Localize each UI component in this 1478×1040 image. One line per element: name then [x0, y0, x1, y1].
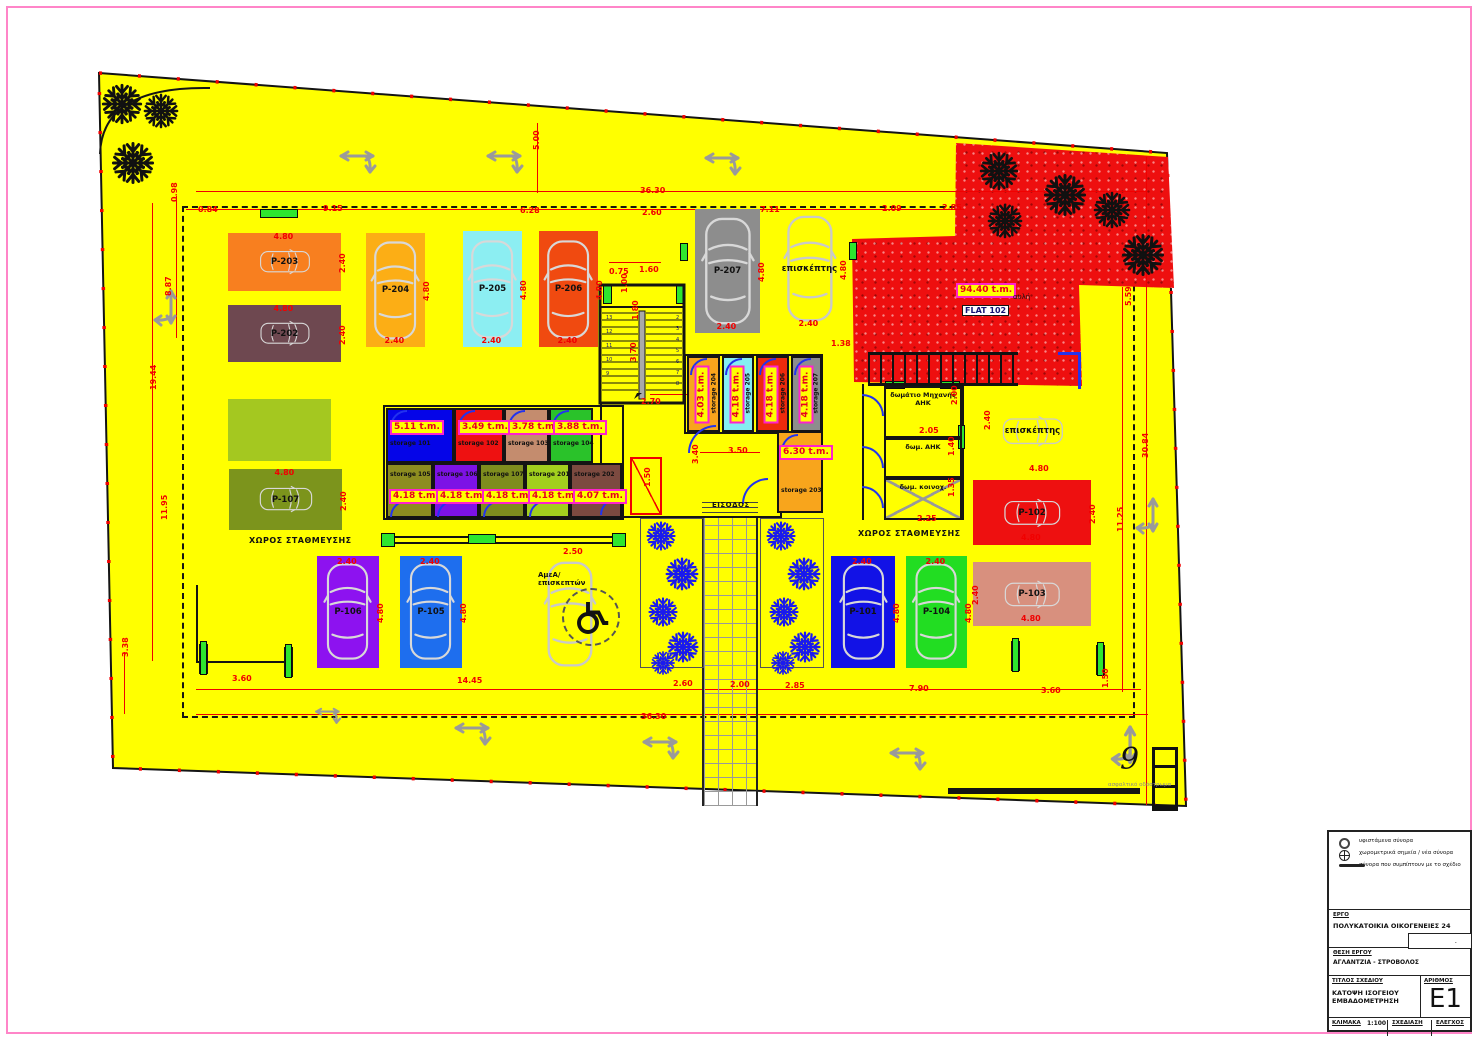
plant-icon: [645, 520, 677, 552]
dimension-label: 7.11: [760, 205, 780, 214]
wall-segment: [196, 585, 198, 663]
dimension-label: 14.45: [457, 676, 482, 685]
stall-label: P-106: [334, 607, 361, 617]
svg-text:9: 9: [606, 371, 609, 377]
survey-point-icon: [1339, 850, 1350, 861]
turn-arrow-icon: [450, 720, 494, 754]
stall-dim-main: 4.80: [892, 603, 901, 623]
shrub-icon: [645, 520, 677, 552]
dimension-label: 1.60: [639, 265, 659, 274]
parking-area-label-left: ΧΩΡΟΣ ΣΤΑΘΜΕΥΣΗΣ: [249, 536, 352, 545]
wall-accent: [468, 534, 496, 544]
dimension-label: 2.85: [785, 681, 805, 690]
dimension-label: 6.28: [520, 206, 540, 215]
plant-icon: [647, 596, 679, 628]
stall-dim-cross: 2.40: [717, 322, 737, 331]
dimension-label: 36.30: [641, 712, 666, 721]
storage-area-chip: 4.18 t.m.: [730, 366, 745, 424]
dimension-line: [196, 689, 1141, 690]
tree-icon: [100, 82, 144, 126]
dimension-label: 11.25: [1116, 507, 1125, 532]
shrub-icon: [768, 596, 800, 628]
wheelchair-circle: [562, 588, 620, 646]
storage-name-label: storage 103: [508, 440, 549, 447]
wall-accent: [285, 644, 292, 678]
turn-arrow: [312, 706, 343, 730]
stall-label: P-205: [479, 284, 506, 294]
plant-icon: [1120, 232, 1166, 278]
location-box: ΘΕΣΗ ΕΡΓΟΥ ΑΓΛΑΝΤΖΙΑ - ΣΤΡΟΒΟΛΟΣ: [1329, 948, 1470, 976]
scale-value: 1:100: [1367, 1020, 1386, 1027]
dimension-label: 8.87: [164, 276, 173, 296]
sheet-number: E1: [1424, 984, 1467, 1014]
dimension-label: 3.38: [121, 637, 130, 657]
plant-icon: [142, 92, 180, 130]
storage-area-chip: 4.18 t.m.: [764, 366, 779, 424]
dimension-label: 2.40: [983, 410, 992, 430]
dimension-label: 1.35: [947, 477, 956, 497]
dimension-label: 19.44: [149, 365, 158, 390]
svg-text:8: 8: [676, 381, 679, 387]
dimension-label: 2.70: [641, 397, 661, 406]
drawing-title-box: ΤΙΤΛΟΣ ΣΧΕΔΙΟΥ ΚΑΤΟΨΗ ΙΣΟΓΕΙΟΥ ΕΜΒΑΔΟΜΕΤ…: [1329, 976, 1470, 1018]
storage-name-label: storage 203: [781, 487, 822, 494]
svg-text:12: 12: [606, 329, 612, 335]
storage-area-chip: 4.03 t.m.: [695, 366, 710, 424]
dimension-label: 1.00: [620, 273, 629, 293]
dimension-label: 1.80: [631, 300, 640, 320]
stall-dim-main: 4.80: [757, 262, 766, 282]
turn-arrow: [482, 148, 526, 182]
dimension-label: 2.00: [950, 385, 959, 405]
dimension-line: [1122, 287, 1123, 692]
svg-text:10: 10: [606, 357, 612, 363]
drawn-label: ΣΧΕΔΙΑΣΗ: [1387, 1020, 1423, 1036]
parking-stall-p205: P-205: [463, 231, 522, 347]
scale-box: ΚΛΙΜΑΚΑ 1:100 ΣΧΕΔΙΑΣΗ ΕΛΕΓΧΟΣ: [1329, 1018, 1470, 1036]
red-zone-steps: [868, 352, 1018, 386]
turn-arrow: [885, 745, 929, 779]
storage-area-chip: 3.49 t.m.: [458, 420, 512, 435]
storage-name-label: storage 101: [390, 440, 431, 447]
dimension-label: 2.85: [942, 203, 962, 212]
stall-dim-cross: 2.40: [338, 325, 347, 345]
drawing-title-line1: ΚΑΤΟΨΗ ΙΣΟΓΕΙΟΥ: [1332, 989, 1417, 997]
legend-item: χωρομετρικά σημεία / νέα σύνορα: [1333, 850, 1466, 856]
stall-dim-main: 4.80: [274, 232, 294, 241]
stall-label: επισκέπτης: [1005, 426, 1060, 436]
stall-label: P-101: [849, 607, 876, 617]
drawing-sheet: 94.40 t.m. FLAT 102 αυλή ΧΩΡΟΣ ΣΤΑΘΜΕΥΣΗ…: [0, 0, 1478, 1040]
parking-stall-p101: P-101: [831, 556, 895, 668]
dimension-line: [152, 203, 153, 661]
dimension-label: 36.30: [640, 186, 665, 195]
shrub-icon: [647, 596, 679, 628]
stall-dim-cross: 2.40: [558, 336, 578, 345]
parking-stall-p202: P-202: [228, 305, 341, 362]
stall-dim-main: 4.80: [519, 280, 528, 300]
dimension-label: 2.05: [919, 426, 939, 435]
shrub-icon: [664, 556, 700, 592]
shrub-icon: [770, 650, 796, 676]
dimension-label: 3.60: [1041, 686, 1061, 695]
red-zone-court-label: αυλή: [1013, 293, 1030, 301]
svg-text:2: 2: [676, 315, 679, 321]
svg-text:3: 3: [676, 326, 679, 332]
stall-label: επισκέπτης: [782, 264, 837, 274]
shrub-icon: [786, 556, 822, 592]
stall-dim-main: 4.80: [1021, 614, 1041, 623]
tree-icon: [1042, 172, 1088, 218]
turn-arrow-icon: [700, 150, 744, 184]
plant-icon: [1092, 190, 1132, 230]
floor-plan: 94.40 t.m. FLAT 102 αυλή ΧΩΡΟΣ ΣΤΑΘΜΕΥΣΗ…: [0, 0, 1478, 1040]
turn-arrow: [700, 150, 744, 184]
boundary-point-icon: [1339, 838, 1350, 849]
tree-icon: [1120, 232, 1166, 278]
legend-box: υφιστάμενα σύνορα χωρομετρικά σημεία / ν…: [1329, 838, 1470, 910]
stall-dim-cross: 2.40: [1088, 504, 1097, 524]
room-label: δωμάτιο Μηχανής ΑΗΚ: [890, 391, 956, 407]
dimension-label: 1.38: [831, 339, 851, 348]
hall-wall: [600, 516, 782, 518]
staircase-drawing: 1312111092345678: [598, 283, 686, 405]
storage-name-label: storage 107: [483, 471, 524, 478]
road-structure: [1152, 747, 1178, 811]
project-box: ΕΡΓΟ ΠΟΛΥΚΑΤΟΙΚΙΑ ΟΙΚΟΓΕΝΕΙΕΣ 24 .: [1329, 910, 1470, 948]
stall-dim-main: 4.80: [459, 603, 468, 623]
scale-label: ΚΛΙΜΑΚΑ: [1332, 1020, 1361, 1026]
drawing-title-line2: ΕΜΒΑΔΟΜΕΤΡΗΣΗ: [1332, 997, 1417, 1005]
plant-icon: [770, 650, 796, 676]
dimension-label: 1.50: [1101, 668, 1110, 688]
parking-stall-p106: P-106: [317, 556, 379, 668]
plant-icon: [978, 150, 1020, 192]
stall-dim-cross: 2.40: [337, 557, 357, 566]
storage-name-label: storage 207: [813, 374, 820, 414]
storage-name-label: storage 102: [458, 440, 499, 447]
wall-segment: [962, 384, 964, 520]
wall-accent: [381, 533, 395, 547]
location-name: ΑΓΛΑΝΤΖΙΑ - ΣΤΡΟΒΟΛΟΣ: [1333, 959, 1466, 966]
plant-icon: [1042, 172, 1088, 218]
revision-box: .: [1408, 933, 1472, 949]
tree-icon: [110, 140, 156, 186]
dimension-label: 4.80: [1029, 464, 1049, 473]
wall-accent: [200, 641, 207, 675]
dimension-label: 1.40: [947, 436, 956, 456]
storage-name-label: storage 106: [437, 471, 478, 478]
turn-arrow-icon: [482, 148, 526, 182]
project-label: ΕΡΓΟ: [1333, 912, 1466, 918]
plant-icon: [786, 556, 822, 592]
staircase: 1312111092345678: [598, 283, 686, 405]
tree-icon: [978, 150, 1020, 192]
svg-text:11: 11: [606, 343, 612, 349]
stall-label: P-104: [923, 607, 950, 617]
stall-label: P-203: [271, 257, 298, 267]
red-zone-door: [1058, 352, 1081, 389]
storage-name-label: storage 201: [529, 471, 570, 478]
storage-area-chip: 6.30 t.m.: [779, 445, 833, 460]
turn-arrow: [1127, 493, 1161, 537]
stall-dim-main: 4.80: [376, 603, 385, 623]
plot-number: 9: [1120, 742, 1139, 777]
storage-name-label: storage 206: [780, 374, 787, 414]
location-label: ΘΕΣΗ ΕΡΓΟΥ: [1333, 950, 1466, 956]
stall-dim-main: 4.80: [839, 260, 848, 280]
legend-text: σύνορα που συμπίπτουν με το σχέδιο: [1359, 862, 1461, 868]
svg-text:4: 4: [676, 337, 679, 343]
turn-arrow: [450, 720, 494, 754]
storage-name-label: storage 204: [711, 374, 718, 414]
parking-stall-p104: P-104: [906, 556, 967, 668]
dimension-label: 3.60: [232, 674, 252, 683]
parking-area-label-right: ΧΩΡΟΣ ΣΤΑΘΜΕΥΣΗΣ: [858, 529, 961, 538]
storage-name-label: storage 202: [574, 471, 615, 478]
turn-arrow: [335, 148, 379, 182]
dimension-label: 3.50: [728, 446, 748, 455]
dimension-line: [124, 652, 125, 714]
stall-label: P-206: [555, 284, 582, 294]
storage-name-label: storage 104: [553, 440, 594, 447]
check-label: ΕΛΕΓΧΟΣ: [1431, 1020, 1464, 1036]
dimension-label: 5.59: [1124, 286, 1133, 306]
dimension-label: 2.50: [563, 547, 583, 556]
tree-icon: [142, 92, 180, 130]
plant-icon: [664, 556, 700, 592]
stall-dim-cross: 2.40: [799, 319, 819, 328]
parking-stall-p107: P-107: [229, 469, 342, 530]
stall-label: P-207: [714, 266, 741, 276]
stall-dim-cross: 2.40: [971, 585, 980, 605]
red-zone-flat-label: FLAT 102: [962, 305, 1009, 316]
stall-label: P-105: [417, 607, 444, 617]
wall-accent: [680, 243, 688, 261]
legend-text: υφιστάμενα σύνορα: [1359, 838, 1413, 844]
project-name: ΠΟΛΥΚΑΤΟΙΚΙΑ ΟΙΚΟΓΕΝΕΙΕΣ 24: [1333, 922, 1466, 930]
stall-label: P-204: [382, 285, 409, 295]
turn-arrow-icon: [335, 148, 379, 182]
svg-text:5: 5: [676, 348, 679, 354]
dimension-label: 2.60: [642, 208, 662, 217]
plant-icon: [100, 82, 144, 126]
stall-dim-main: 4.80: [275, 468, 295, 477]
storage-area-chip: 5.11 t.m.: [390, 420, 444, 435]
title-block: υφιστάμενα σύνορα χωρομετρικά σημεία / ν…: [1327, 830, 1472, 1032]
parking-stall-: επισκέπτης: [777, 207, 842, 330]
dimension-label: 7.90: [909, 684, 929, 693]
plant-icon: [765, 520, 797, 552]
svg-text:6: 6: [676, 359, 679, 365]
shrub-icon: [765, 520, 797, 552]
dimension-label: 0.84: [198, 205, 218, 214]
storage-name-label: storage 205: [745, 374, 752, 414]
turn-arrow-icon: [885, 745, 929, 779]
legend-item: σύνορα που συμπίπτουν με το σχέδιο: [1333, 862, 1466, 868]
wheelchair-icon: [573, 599, 609, 635]
parking-stall-: επισκέπτης: [975, 396, 1090, 466]
stall-dim-cross: 2.40: [385, 336, 405, 345]
stall-dim-cross: 2.40: [852, 557, 872, 566]
stall-label: P-102: [1018, 508, 1045, 518]
red-zone-area-chip: 94.40 t.m.: [956, 283, 1016, 298]
turn-arrow-icon: [1127, 493, 1161, 537]
svg-text:13: 13: [606, 315, 612, 321]
dimension-label: 11.95: [160, 495, 169, 520]
tree-icon: [986, 202, 1024, 240]
turn-arrow: [638, 734, 682, 768]
stall-dim-cross: 2.40: [338, 253, 347, 273]
wall-segment: [196, 661, 292, 663]
dimension-label: 5.00: [532, 130, 541, 150]
legend-text: χωρομετρικά σημεία / νέα σύνορα: [1359, 850, 1453, 856]
parking-stall-p105: P-105: [400, 556, 462, 668]
parking-stall-p207: P-207: [695, 209, 760, 333]
turn-arrow-icon: [638, 734, 682, 768]
dimension-label: 3.40: [691, 444, 700, 464]
stall-dim-main: 4.80: [274, 304, 294, 313]
storage-south-wall: [383, 536, 623, 544]
stall-dim-cross: 2.40: [420, 557, 440, 566]
stall-dim-main: 4.80: [964, 603, 973, 623]
wall-accent: [612, 533, 626, 547]
dimension-label: 2.09: [882, 204, 902, 213]
turn-arrow: [145, 285, 179, 329]
dimension-label: 2.60: [673, 679, 693, 688]
dimension-label: 2.25: [917, 514, 937, 523]
stall-label: P-107: [272, 495, 299, 505]
plant-icon: [110, 140, 156, 186]
road-note: ασφαλτικό οδόστρωμα: [1108, 782, 1171, 788]
plot-sill: [948, 788, 1140, 794]
parking-stall-p206: P-206: [539, 231, 598, 347]
pedestrian-walkway: [702, 518, 758, 806]
dimension-line: [609, 262, 661, 263]
stall-label: ΑμεΑ/ επισκεπτών: [538, 571, 585, 587]
stall-dim-main: 4.80: [422, 281, 431, 301]
stall-label: P-202: [271, 329, 298, 339]
dimension-label: 1.50: [643, 467, 652, 487]
storage-area-chip: 3.88 t.m.: [553, 420, 607, 435]
svg-text:7: 7: [676, 370, 679, 376]
legend-item: υφιστάμενα σύνορα: [1333, 838, 1466, 844]
turn-arrow-icon: [312, 706, 343, 730]
stall-dim-main: 4.80: [1021, 533, 1041, 542]
shrub-icon: [650, 650, 676, 676]
storage-name-label: storage 105: [390, 471, 431, 478]
wall-accent: [849, 242, 857, 260]
entrance-label: ΕΙΣΟΔΟΣ: [712, 501, 750, 509]
stall-label: P-103: [1018, 589, 1045, 599]
plant-icon: [986, 202, 1024, 240]
stall-dim-main: 4.80: [595, 280, 604, 300]
boundary-line-icon: [1339, 864, 1365, 867]
dimension-label: 0.98: [170, 182, 179, 202]
dimension-label: 2.00: [730, 680, 750, 689]
dimension-label: 30.84: [1141, 433, 1150, 458]
dimension-label: 9.15: [323, 204, 343, 213]
dimension-label: 3.70: [629, 342, 638, 362]
storage-area-chip: 4.18 t.m.: [389, 489, 443, 504]
tree-icon: [1092, 190, 1132, 230]
drawing-title-label: ΤΙΤΛΟΣ ΣΧΕΔΙΟΥ: [1332, 978, 1417, 984]
storage-area-chip: 4.07 t.m.: [573, 489, 627, 504]
plant-icon: [650, 650, 676, 676]
stall-dim-cross: 2.40: [339, 491, 348, 511]
plant-icon: [768, 596, 800, 628]
storage-area-chip: 4.18 t.m.: [799, 366, 814, 424]
stall-dim-cross: 2.40: [926, 557, 946, 566]
parking-stall-p204: P-204: [366, 233, 425, 347]
turn-arrow-icon: [145, 285, 179, 329]
stall-dim-cross: 2.40: [482, 336, 502, 345]
